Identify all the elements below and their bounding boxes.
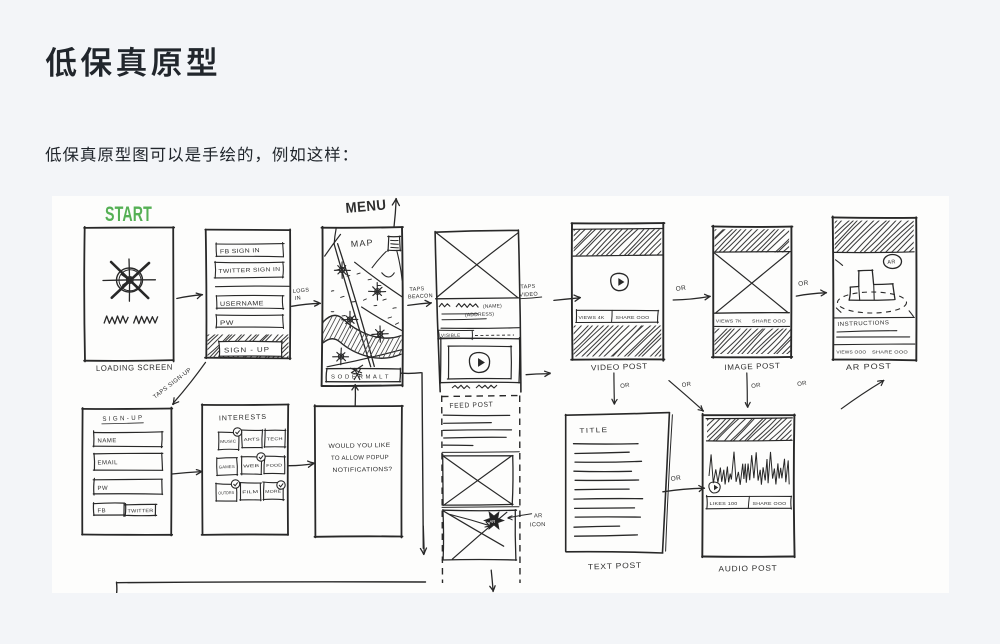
svg-text:IN: IN	[295, 295, 302, 302]
svg-text:TO ALLOW POPUP: TO ALLOW POPUP	[331, 454, 389, 462]
svg-text:PW: PW	[220, 320, 235, 327]
svg-text:TAPS: TAPS	[520, 284, 535, 291]
svg-text:SHARE OOO: SHARE OOO	[753, 501, 787, 506]
svg-text:TECH: TECH	[267, 436, 283, 442]
svg-text:NAME: NAME	[97, 438, 116, 444]
svg-text:MAP: MAP	[350, 237, 374, 249]
svg-text:FEED POST: FEED POST	[449, 401, 493, 410]
svg-text:TWITTER SIGN IN: TWITTER SIGN IN	[218, 267, 280, 275]
svg-text:ICON: ICON	[530, 522, 546, 529]
svg-text:(NAME): (NAME)	[483, 303, 502, 310]
svg-text:AR: AR	[534, 513, 543, 519]
svg-text:IMAGE POST: IMAGE POST	[724, 361, 780, 372]
svg-text:AR: AR	[887, 259, 896, 266]
svg-text:OR: OR	[751, 383, 762, 390]
svg-text:VISIBLE: VISIBLE	[441, 333, 461, 338]
svg-text:MUSIC: MUSIC	[220, 438, 236, 444]
svg-text:FB: FB	[97, 508, 106, 514]
svg-text:INSTRUCTIONS: INSTRUCTIONS	[837, 320, 889, 328]
svg-text:LIKES 100: LIKES 100	[710, 501, 738, 506]
svg-text:AR: AR	[490, 519, 496, 524]
svg-text:OR: OR	[675, 285, 686, 293]
svg-text:FB SIGN IN: FB SIGN IN	[220, 248, 260, 255]
svg-text:WEB: WEB	[243, 463, 259, 469]
svg-text:FILM: FILM	[242, 489, 259, 495]
svg-text:TAPS: TAPS	[409, 286, 424, 293]
svg-text:START: START	[105, 203, 152, 226]
svg-text:INTERESTS: INTERESTS	[219, 414, 267, 423]
svg-text:TITLE: TITLE	[579, 427, 608, 435]
svg-text:MENU: MENU	[345, 197, 387, 217]
svg-text:TWITTER: TWITTER	[127, 508, 153, 514]
svg-text:OR: OR	[797, 381, 808, 388]
svg-text:SIGN - UP: SIGN - UP	[224, 347, 270, 355]
svg-text:OR: OR	[620, 383, 631, 390]
svg-text:LOADING SCREEN: LOADING SCREEN	[96, 363, 173, 373]
svg-text:VIDEO POST: VIDEO POST	[591, 362, 648, 373]
svg-text:ARTS: ARTS	[244, 436, 260, 442]
svg-text:BEACON: BEACON	[408, 293, 433, 300]
svg-text:OR: OR	[681, 382, 692, 389]
svg-text:OR: OR	[798, 280, 809, 288]
svg-text:PW: PW	[97, 486, 108, 492]
svg-text:GAMES: GAMES	[219, 464, 235, 470]
svg-text:VIEWS 4K: VIEWS 4K	[579, 315, 605, 320]
svg-text:SHARE OOO: SHARE OOO	[872, 350, 908, 355]
svg-text:SHARE OOO: SHARE OOO	[616, 315, 650, 320]
svg-text:VIEWS OOO: VIEWS OOO	[836, 350, 866, 355]
svg-text:S I G N - U P: S I G N - U P	[102, 415, 142, 423]
svg-text:(ADDRESS): (ADDRESS)	[465, 311, 495, 318]
svg-text:TEXT POST: TEXT POST	[588, 561, 642, 572]
svg-text:LOGS: LOGS	[293, 287, 310, 295]
svg-text:WOULD YOU LIKE: WOULD YOU LIKE	[328, 442, 390, 450]
svg-text:AUDIO POST: AUDIO POST	[718, 563, 777, 573]
svg-text:FOOD: FOOD	[266, 462, 282, 468]
svg-text:SHARE OOO: SHARE OOO	[752, 319, 786, 324]
svg-text:VIEWS 7K: VIEWS 7K	[716, 319, 742, 324]
svg-text:USERNAME: USERNAME	[220, 300, 264, 308]
svg-text:OUTDRS: OUTDRS	[218, 490, 234, 496]
svg-text:EMAIL: EMAIL	[97, 460, 118, 466]
svg-text:TAPS SIGN-UP: TAPS SIGN-UP	[153, 367, 193, 400]
svg-text:AR POST: AR POST	[846, 361, 892, 372]
svg-text:OR: OR	[670, 475, 681, 483]
svg-text:NOTIFICATIONS?: NOTIFICATIONS?	[332, 466, 392, 474]
